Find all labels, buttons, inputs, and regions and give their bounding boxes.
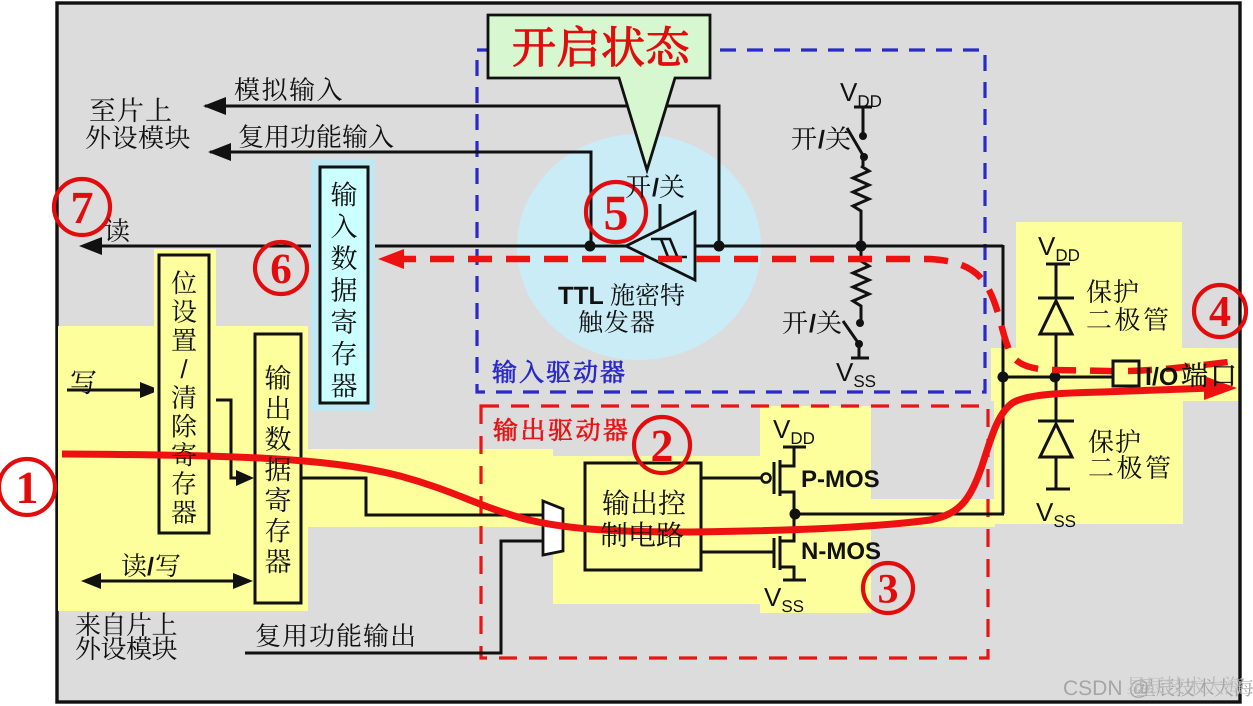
svg-text:3: 3 — [878, 566, 899, 612]
svg-text:1: 1 — [16, 462, 39, 513]
svg-text:/: / — [652, 174, 659, 202]
svg-text:/: / — [818, 126, 825, 154]
svg-text:TTL: TTL — [558, 282, 604, 310]
svg-text:P-MOS: P-MOS — [801, 466, 880, 493]
svg-text:/: / — [809, 310, 816, 338]
svg-text:N-MOS: N-MOS — [801, 538, 881, 565]
svg-text:I/O: I/O — [1145, 363, 1178, 391]
svg-text:5: 5 — [604, 184, 629, 240]
svg-text:2: 2 — [651, 420, 674, 471]
svg-text:7: 7 — [71, 182, 94, 233]
svg-text:6: 6 — [270, 246, 292, 293]
svg-text:4: 4 — [1209, 287, 1231, 336]
svg-text:/: / — [147, 553, 154, 581]
svg-text:/: / — [180, 354, 188, 384]
